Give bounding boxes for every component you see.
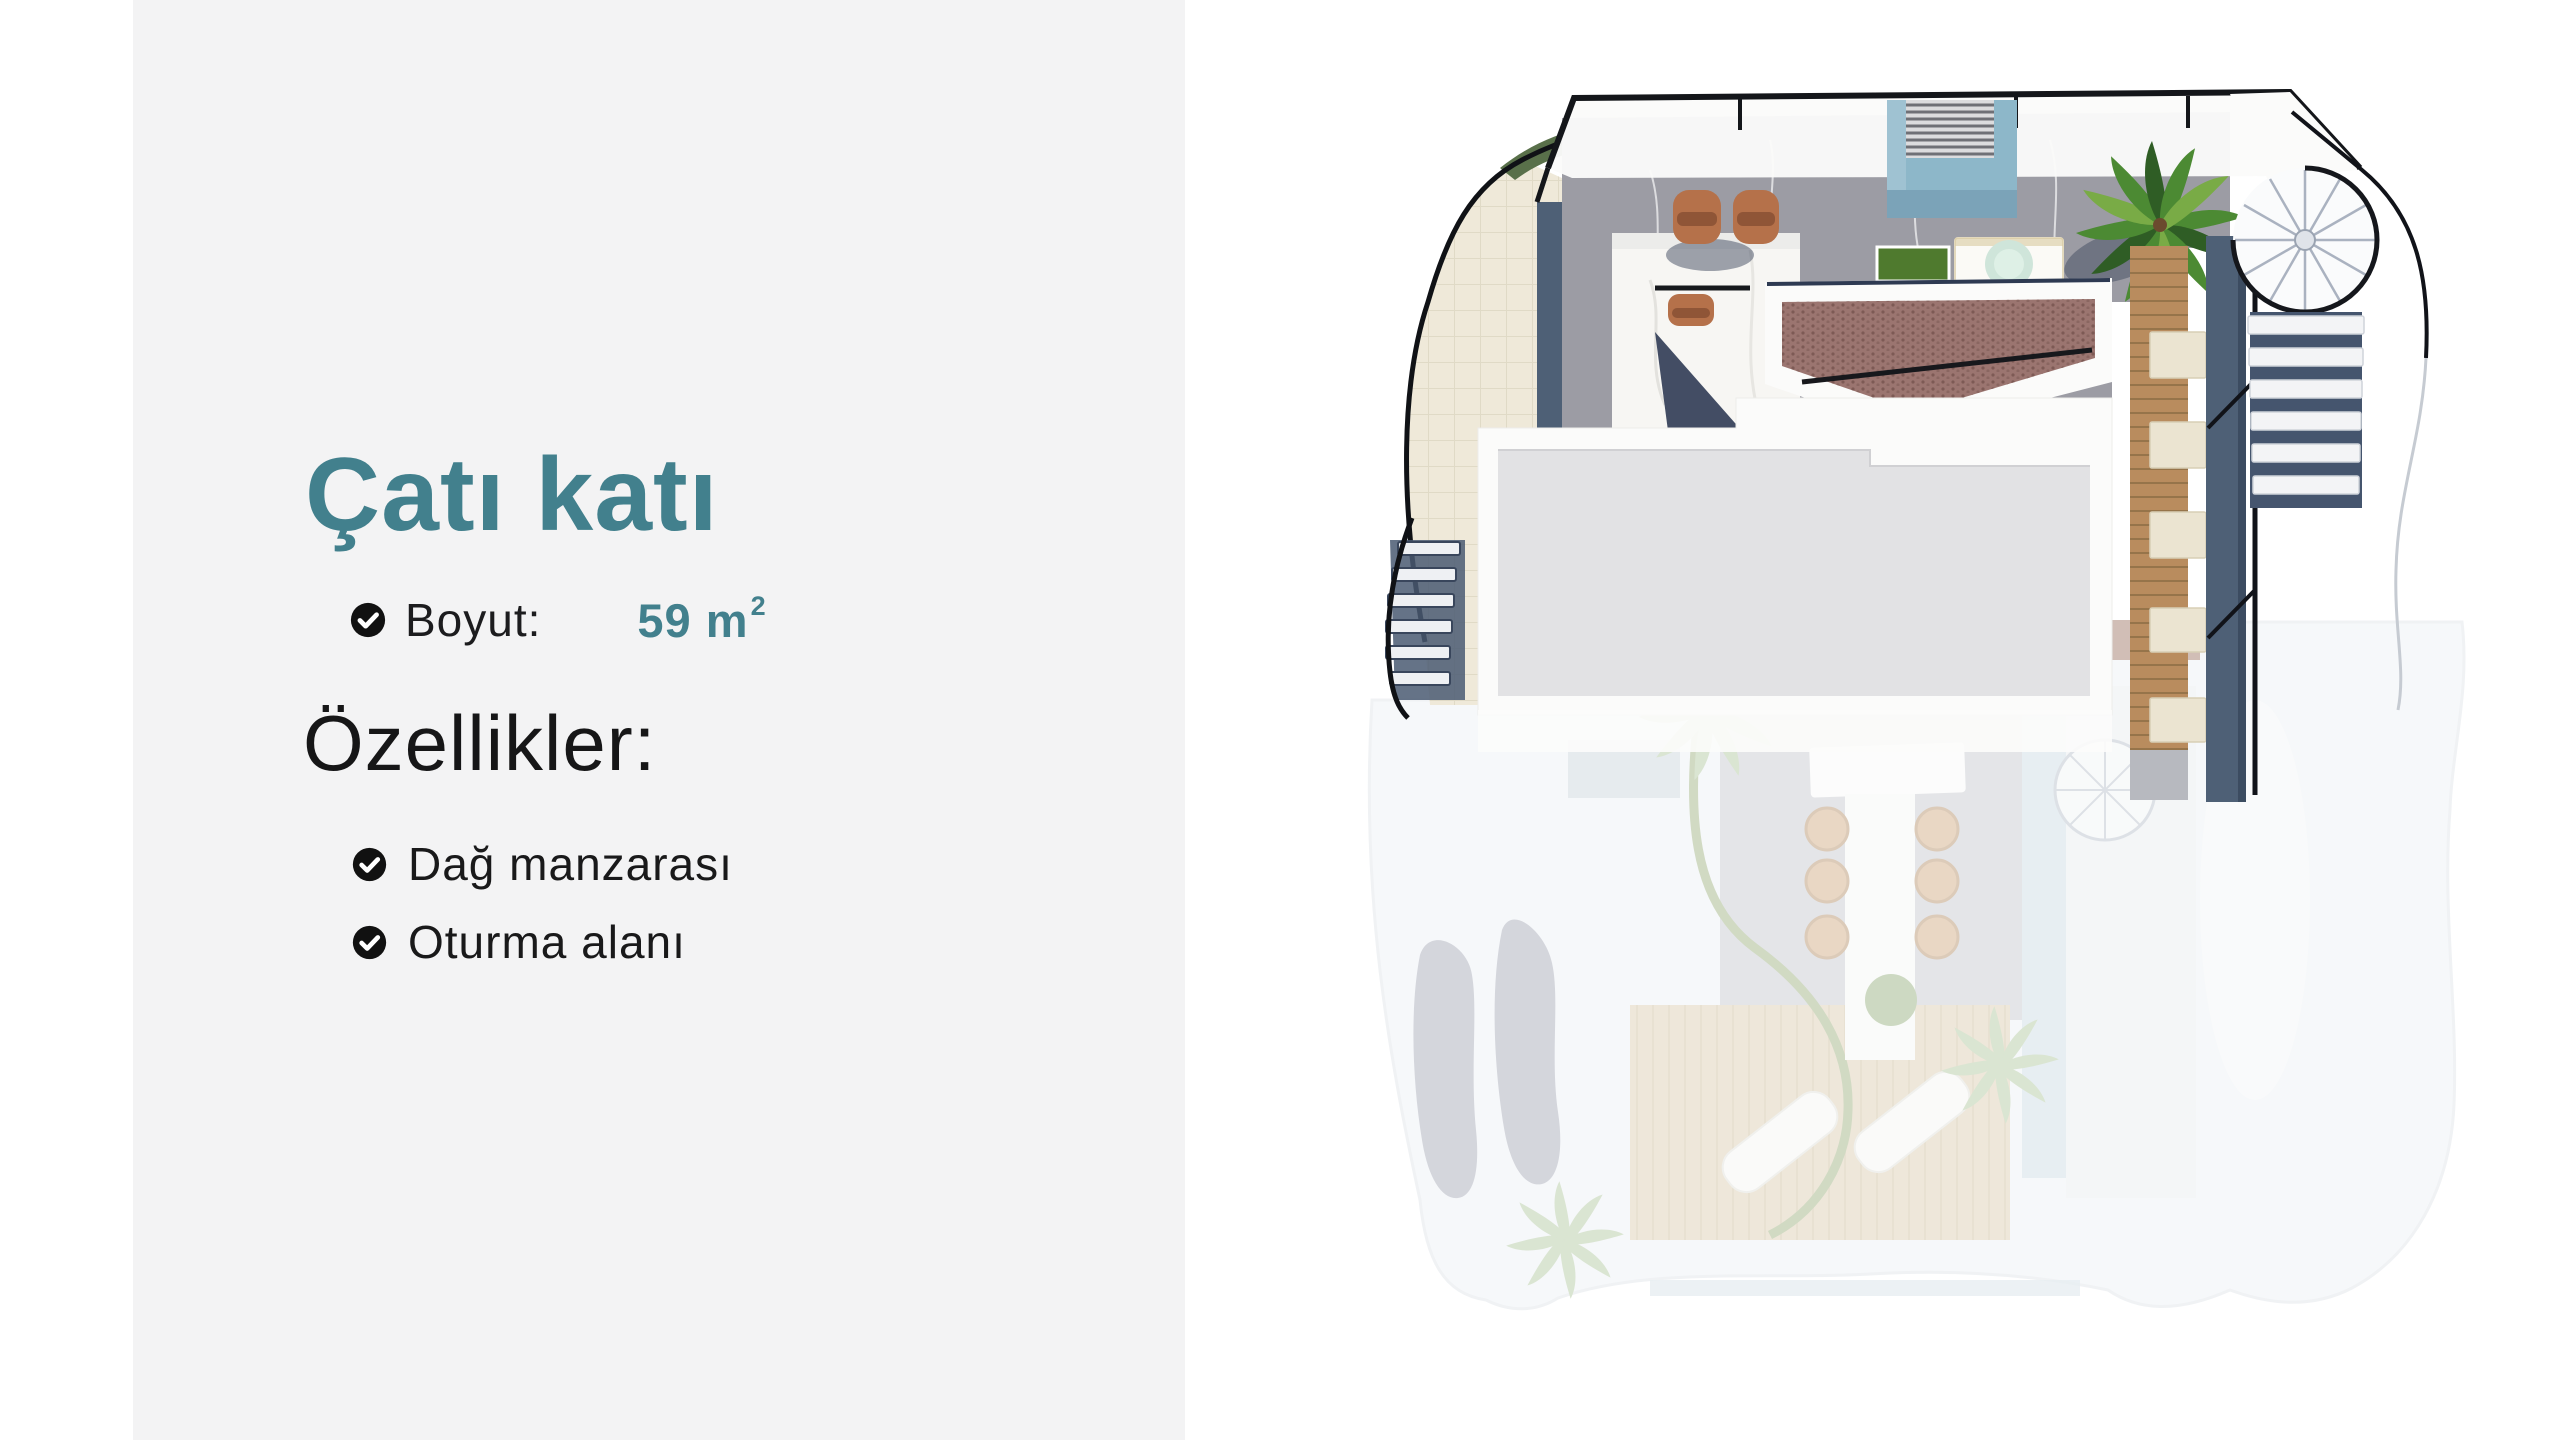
check-icon bbox=[351, 846, 388, 883]
info-panel: Çatı katı Boyut: 59 m 2 Özellikler: Dağ … bbox=[133, 0, 1185, 1440]
size-value-superscript: 2 bbox=[751, 591, 766, 622]
feature-item-sitting-area: Oturma alanı bbox=[351, 916, 733, 968]
lounger-shadow bbox=[1666, 239, 1754, 271]
main-roof bbox=[1478, 398, 2112, 715]
size-row: Boyut: 59 m 2 bbox=[349, 595, 766, 645]
roof-apron bbox=[1478, 710, 2112, 752]
page-title: Çatı katı bbox=[305, 438, 719, 552]
deck-stone-tile bbox=[2130, 750, 2188, 800]
roof-floor-plan-illustration bbox=[1350, 50, 2540, 1360]
check-icon bbox=[351, 924, 388, 961]
grass-patch bbox=[1877, 247, 1949, 281]
feature-item-mountain-view: Dağ manzarası bbox=[351, 838, 733, 890]
spiral-staircase bbox=[2233, 168, 2377, 312]
stair-bulkhead bbox=[1887, 100, 2017, 218]
feature-label: Dağ manzarası bbox=[408, 837, 733, 891]
outer-staircase-right bbox=[2248, 312, 2364, 508]
lounger bbox=[1733, 190, 1779, 244]
size-value: 59 m bbox=[637, 593, 748, 648]
features-list: Dağ manzarası Oturma alanı bbox=[351, 838, 733, 968]
terrace-chair bbox=[1668, 294, 1714, 326]
size-label: Boyut: bbox=[405, 593, 541, 647]
outer-staircase-left bbox=[1386, 518, 1465, 718]
check-icon bbox=[349, 601, 387, 639]
wall-right-edge bbox=[2238, 236, 2246, 802]
feature-label: Oturma alanı bbox=[408, 915, 686, 969]
lounger bbox=[1673, 190, 1721, 244]
stair-treads-area bbox=[1906, 100, 1994, 158]
features-heading: Özellikler: bbox=[303, 698, 656, 789]
